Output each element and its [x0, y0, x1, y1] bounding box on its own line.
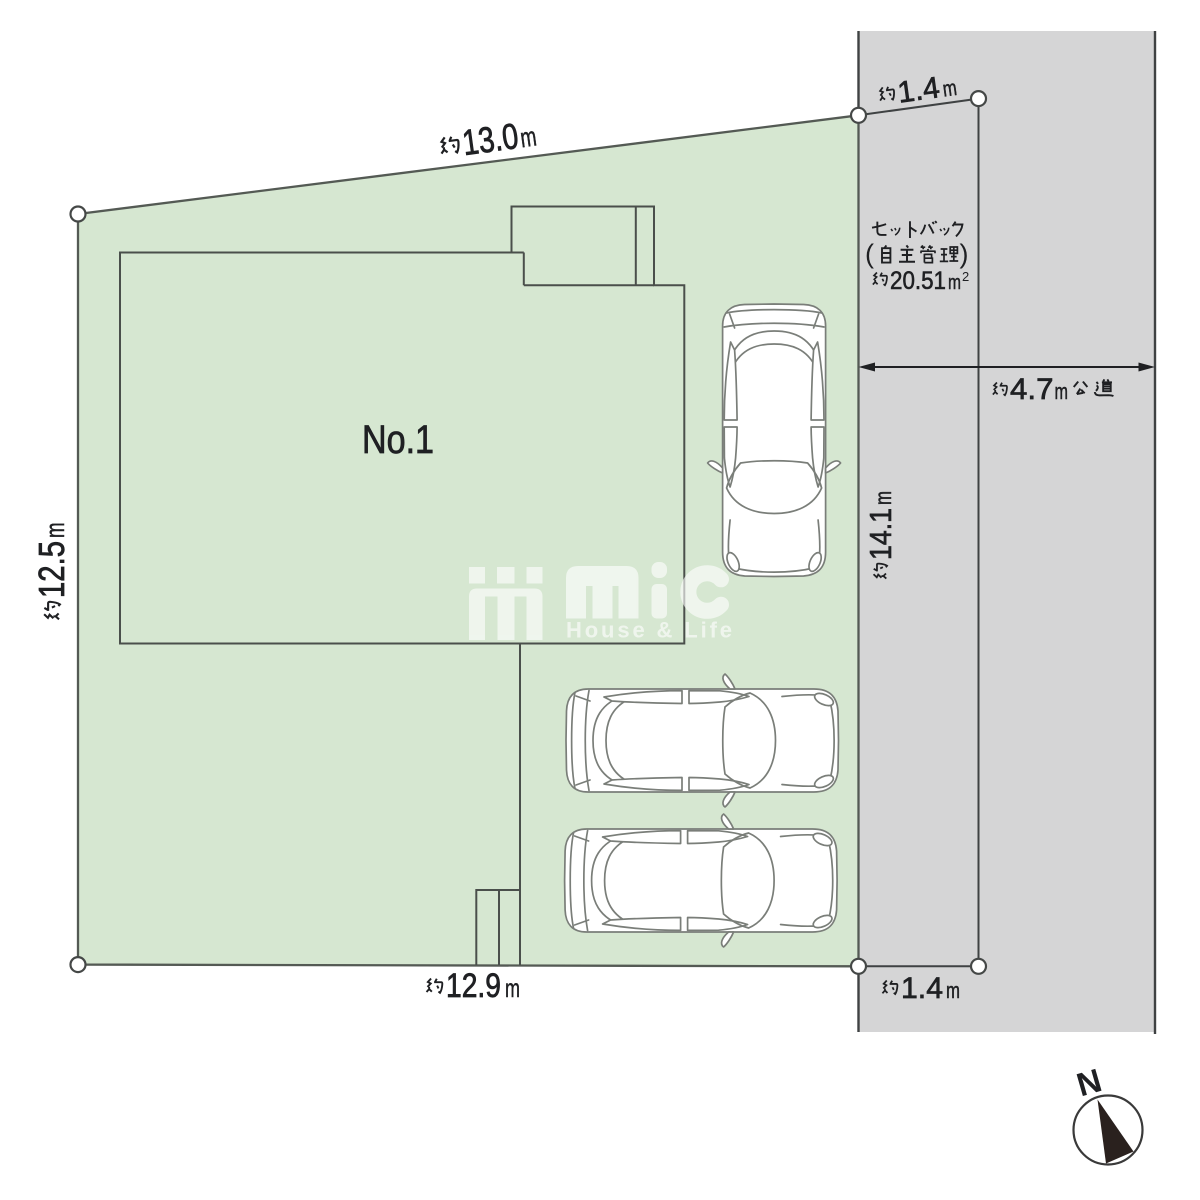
svg-text:1.4: 1.4	[896, 71, 942, 109]
svg-text:m: m	[505, 973, 520, 1003]
svg-text:m: m	[948, 272, 961, 294]
svg-text:12.5: 12.5	[31, 541, 72, 598]
svg-text:m: m	[40, 523, 70, 539]
svg-text:12.9: 12.9	[446, 967, 501, 1005]
svg-text:No.1: No.1	[362, 418, 434, 462]
svg-text:4.7: 4.7	[1010, 373, 1054, 406]
svg-text:13.0: 13.0	[460, 115, 521, 163]
svg-text:N: N	[1072, 1061, 1105, 1103]
svg-text:(: (	[865, 239, 874, 269]
svg-text:20.51: 20.51	[890, 267, 946, 295]
svg-text:1.4: 1.4	[901, 972, 943, 1005]
svg-text:2: 2	[962, 269, 969, 284]
svg-text:m: m	[1055, 379, 1069, 404]
svg-text:m: m	[946, 978, 960, 1003]
svg-text:): )	[960, 239, 969, 269]
svg-text:m: m	[870, 491, 896, 505]
svg-text:m: m	[518, 121, 538, 153]
svg-text:14.1: 14.1	[863, 508, 898, 560]
